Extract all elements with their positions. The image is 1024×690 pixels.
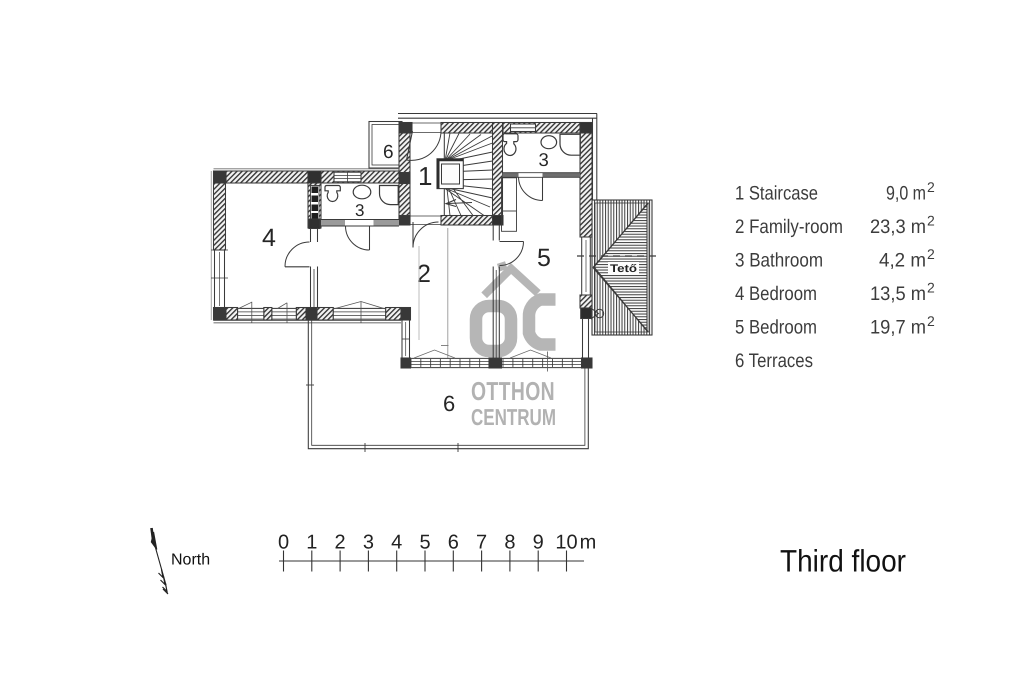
svg-text:0: 0: [278, 532, 289, 554]
svg-text:23,3 m: 23,3 m: [870, 216, 926, 238]
svg-text:3: 3: [539, 149, 549, 170]
svg-text:2: 2: [927, 280, 935, 296]
svg-text:Tető: Tető: [610, 263, 637, 275]
svg-text:1: 1: [306, 532, 317, 554]
svg-text:2: 2: [927, 313, 935, 329]
svg-text:OTTHON: OTTHON: [471, 376, 555, 406]
svg-text:1 Staircase: 1 Staircase: [735, 183, 818, 205]
svg-text:3: 3: [363, 532, 374, 554]
svg-text:4: 4: [262, 224, 276, 252]
svg-text:19,7 m: 19,7 m: [870, 317, 926, 339]
svg-text:CENTRUM: CENTRUM: [471, 404, 556, 430]
svg-text:8: 8: [504, 532, 515, 554]
svg-text:13,5 m: 13,5 m: [870, 283, 926, 305]
svg-text:6: 6: [448, 532, 459, 554]
svg-text:9,0 m: 9,0 m: [886, 183, 926, 205]
svg-text:North: North: [171, 552, 210, 569]
svg-text:2 Family-room: 2 Family-room: [735, 216, 843, 238]
svg-text:9: 9: [533, 532, 544, 554]
svg-text:Third floor: Third floor: [780, 544, 906, 579]
svg-text:2: 2: [927, 179, 935, 195]
svg-text:3: 3: [355, 201, 364, 220]
svg-text:1: 1: [418, 161, 432, 191]
svg-text:4 Bedroom: 4 Bedroom: [735, 283, 817, 305]
svg-text:5 Bedroom: 5 Bedroom: [735, 317, 817, 339]
svg-text:2: 2: [335, 532, 346, 554]
svg-text:5: 5: [419, 532, 430, 554]
svg-text:7: 7: [476, 532, 487, 554]
svg-text:5: 5: [537, 244, 551, 272]
svg-text:6: 6: [443, 391, 455, 416]
svg-text:4: 4: [391, 532, 402, 554]
svg-text:m: m: [580, 532, 597, 554]
svg-text:3 Bathroom: 3 Bathroom: [735, 250, 823, 272]
svg-text:4,2 m: 4,2 m: [879, 250, 926, 272]
svg-text:2: 2: [927, 246, 935, 262]
svg-text:10: 10: [555, 532, 577, 554]
svg-text:6: 6: [383, 142, 394, 163]
svg-text:6 Terraces: 6 Terraces: [735, 350, 813, 372]
svg-text:2: 2: [927, 213, 935, 229]
